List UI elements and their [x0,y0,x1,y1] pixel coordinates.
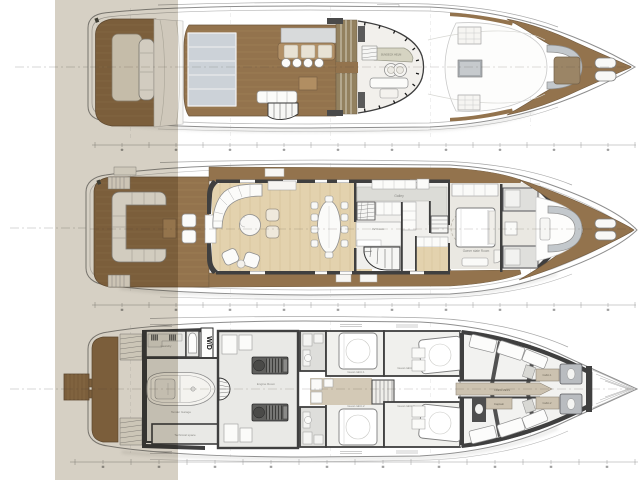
svg-text:Engine Room: Engine Room [257,382,276,386]
svg-text:SUNDECK HELM: SUNDECK HELM [381,53,402,57]
svg-text:Cabin 1: Cabin 1 [543,373,552,377]
svg-text:Galley: Galley [394,194,404,198]
svg-text:Cabin 2: Cabin 2 [543,401,552,405]
svg-text:W/D: W/D [205,336,212,350]
svg-text:Guest cabin 1: Guest cabin 1 [347,370,365,374]
svg-text:Captain: Captain [494,402,505,406]
svg-text:Owner state Room: Owner state Room [463,249,490,253]
svg-text:CREW MESS: CREW MESS [494,388,510,392]
